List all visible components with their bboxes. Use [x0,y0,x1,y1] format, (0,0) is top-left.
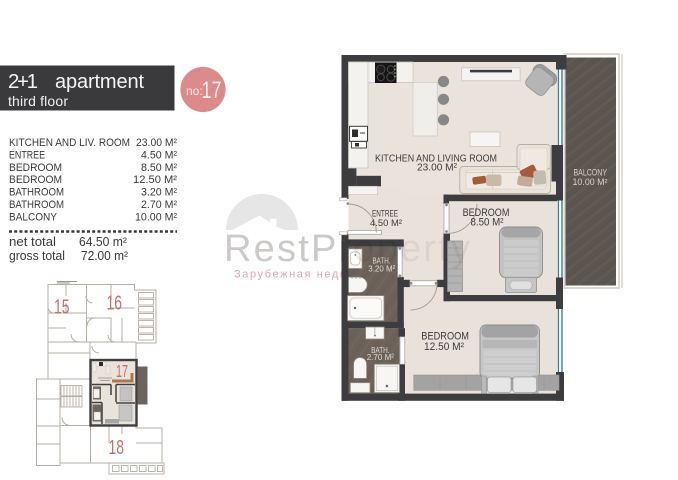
svg-text:BEDROOM: BEDROOM [9,162,62,174]
svg-text:BEDROOM: BEDROOM [9,174,62,186]
svg-text:2.70 M²: 2.70 M² [141,199,177,211]
svg-text:12.50 M²: 12.50 M² [133,174,177,186]
svg-text:12.50 M²: 12.50 M² [424,341,464,353]
svg-text:KITCHEN AND LIV. ROOM: KITCHEN AND LIV. ROOM [9,137,130,149]
svg-text:64.50 m²: 64.50 m² [79,235,127,249]
svg-text:BATHROOM: BATHROOM [9,187,64,199]
svg-text:8.50 M²: 8.50 M² [141,162,177,174]
svg-text:third floor: third floor [8,93,68,109]
svg-text:8.50 M²: 8.50 M² [471,216,504,228]
svg-text:17: 17 [116,361,128,381]
svg-text:23.00 M²: 23.00 M² [417,162,457,174]
svg-text:4.50 M²: 4.50 M² [141,149,177,161]
svg-text:17: 17 [202,77,222,104]
svg-text:15: 15 [54,297,70,319]
svg-text:18: 18 [109,437,125,459]
svg-text:10.00 M²: 10.00 M² [573,177,608,187]
svg-text:BATHROOM: BATHROOM [9,199,64,211]
svg-text:2.70 M²: 2.70 M² [367,352,394,362]
svg-text:gross total: gross total [9,249,65,263]
svg-text:BALCONY: BALCONY [9,211,58,223]
svg-text:16: 16 [107,293,123,315]
svg-text:3.20 M²: 3.20 M² [141,187,177,199]
svg-text:2+1: 2+1 [8,70,38,93]
svg-text:72.00 m²: 72.00 m² [81,249,128,263]
svg-text:RestProperty: RestProperty [224,228,470,270]
svg-text:no:: no: [186,84,203,98]
svg-text:23.00 M²: 23.00 M² [136,137,177,149]
svg-text:10.00 M²: 10.00 M² [135,211,177,223]
svg-text:ENTREE: ENTREE [9,149,45,161]
svg-text:net total: net total [9,235,56,249]
svg-text:apartment: apartment [55,71,144,93]
